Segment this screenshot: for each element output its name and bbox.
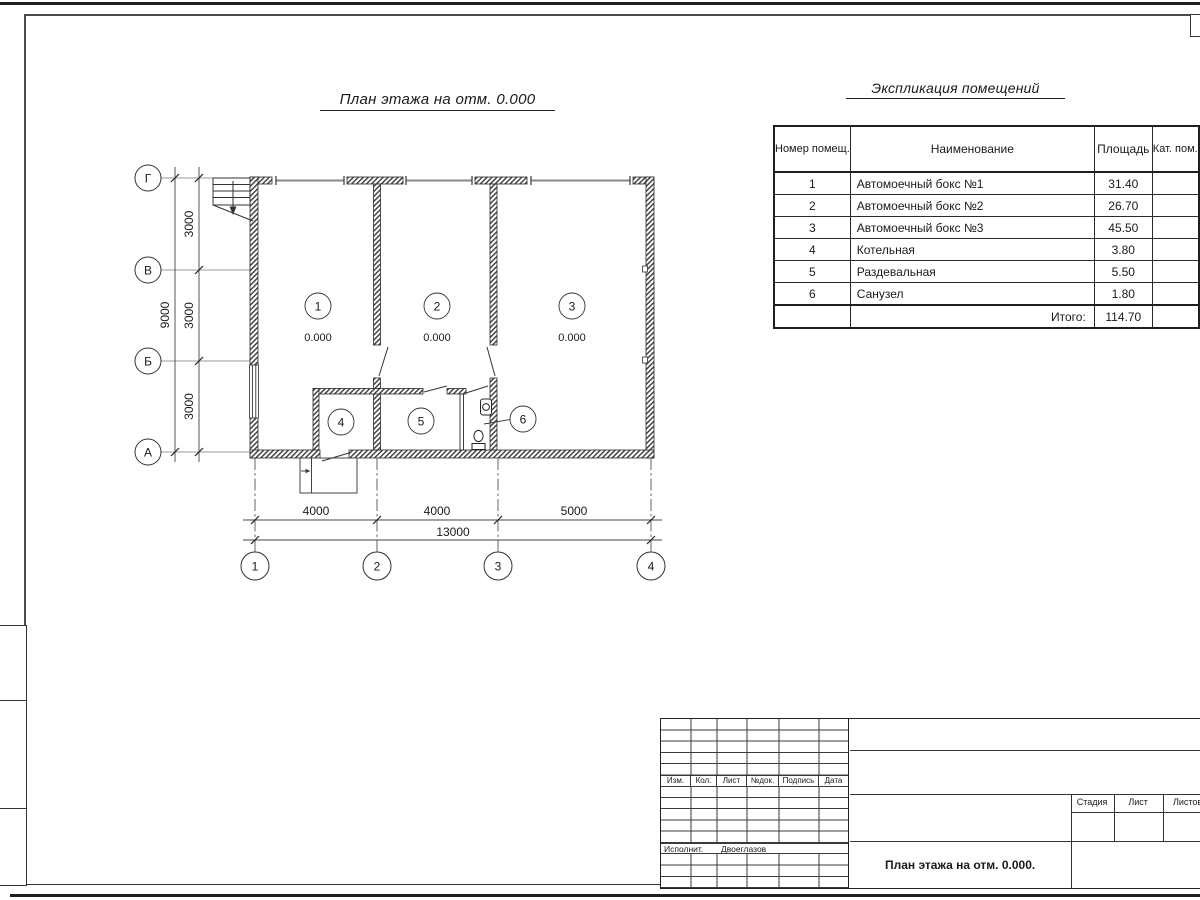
porch bbox=[300, 458, 357, 493]
room-number: 4 bbox=[774, 239, 850, 261]
room-5-number: 5 bbox=[418, 415, 425, 429]
dim-bottom-total: 13000 bbox=[436, 525, 470, 539]
col-izm: Изм. bbox=[661, 776, 691, 785]
walls bbox=[250, 177, 654, 458]
stamp-line bbox=[850, 750, 1200, 751]
table-row: 5 Раздевальная 5.50 bbox=[774, 261, 1199, 283]
room-labels: 1 0.000 2 0.000 3 0.000 4 5 6 bbox=[304, 293, 586, 435]
room-area: 26.70 bbox=[1094, 195, 1152, 217]
frame-top-line bbox=[24, 14, 1200, 16]
stairs-symbol bbox=[213, 178, 253, 221]
axis-bubbles-cols: 1 2 3 4 bbox=[241, 552, 665, 580]
header-room-number: Номер помещ. bbox=[774, 126, 850, 172]
room-number: 5 bbox=[774, 261, 850, 283]
room-name: Автомоечный бокс №2 bbox=[850, 195, 1094, 217]
executor-name: Двоеглазов bbox=[721, 844, 781, 854]
dim-left-2: 3000 bbox=[182, 302, 196, 329]
room-category bbox=[1152, 217, 1198, 239]
room-area: 3.80 bbox=[1094, 239, 1152, 261]
dim-bottom-3: 5000 bbox=[561, 504, 588, 518]
title-block-revision-grid: Изм. Кол. Лист №док. Подпись Дата Исполн… bbox=[661, 719, 849, 888]
room-name: Котельная bbox=[850, 239, 1094, 261]
room-3-elevation: 0.000 bbox=[558, 332, 586, 344]
room-category bbox=[1152, 261, 1198, 283]
executor-label: Исполнит. bbox=[664, 844, 718, 854]
sheet-top-edge bbox=[0, 2, 1200, 5]
room-2-number: 2 bbox=[434, 300, 441, 314]
explication-title: Экспликация помещений bbox=[846, 80, 1065, 99]
room-category bbox=[1152, 283, 1198, 306]
table-row: 3 Автомоечный бокс №3 45.50 bbox=[774, 217, 1199, 239]
frame-margin-box-3 bbox=[0, 808, 27, 886]
dim-bottom-1: 4000 bbox=[303, 504, 330, 518]
axis-label-col-4: 4 bbox=[648, 560, 655, 574]
sheet-bottom-edge bbox=[10, 894, 1200, 897]
room-1-elevation: 0.000 bbox=[304, 332, 332, 344]
axis-label-row-1: Г bbox=[145, 172, 152, 186]
partition-wall bbox=[460, 394, 464, 450]
stamp-line bbox=[1071, 812, 1200, 813]
col-kol: Кол. bbox=[691, 776, 717, 785]
frame-margin-box-1 bbox=[0, 625, 27, 702]
document-title: План этажа на отм. 0.000. bbox=[850, 842, 1071, 888]
room-name: Раздевальная bbox=[850, 261, 1094, 283]
title-block: Изм. Кол. Лист №док. Подпись Дата Исполн… bbox=[660, 718, 1200, 889]
window-symbol bbox=[250, 365, 259, 418]
executor-row: Исполнит. Двоеглазов bbox=[661, 843, 848, 854]
dim-bottom-2: 4000 bbox=[424, 504, 451, 518]
table-row: 4 Котельная 3.80 bbox=[774, 239, 1199, 261]
room-number: 2 bbox=[774, 195, 850, 217]
room-area: 45.50 bbox=[1094, 217, 1152, 239]
room-number: 1 bbox=[774, 172, 850, 195]
room-1-number: 1 bbox=[315, 300, 322, 314]
gate-lines bbox=[276, 176, 630, 185]
room-number: 3 bbox=[774, 217, 850, 239]
room-category bbox=[1152, 195, 1198, 217]
dim-left-1: 3000 bbox=[182, 210, 196, 237]
room-name: Автомоечный бокс №1 bbox=[850, 172, 1094, 195]
explication-table: Номер помещ. Наименование Площадь Кат. п… bbox=[773, 125, 1200, 329]
room-2-elevation: 0.000 bbox=[423, 332, 451, 344]
room-6-number: 6 bbox=[520, 413, 527, 427]
axis-label-col-2: 2 bbox=[374, 560, 381, 574]
room-name: Автомоечный бокс №3 bbox=[850, 217, 1094, 239]
room-4-number: 4 bbox=[338, 416, 345, 430]
col-data: Дата bbox=[819, 776, 848, 785]
frame-corner-box bbox=[1190, 14, 1200, 37]
room-name: Санузел bbox=[850, 283, 1094, 306]
axis-label-col-1: 1 bbox=[252, 560, 259, 574]
sheet-label: Лист bbox=[1114, 794, 1163, 811]
col-podpis: Подпись bbox=[779, 776, 819, 785]
col-list: Лист bbox=[717, 776, 747, 785]
door-swing-symbol bbox=[322, 347, 495, 461]
header-area: Площадь bbox=[1094, 126, 1152, 172]
room-number: 6 bbox=[774, 283, 850, 306]
header-category: Кат. пом. bbox=[1152, 126, 1198, 172]
table-header-row: Номер помещ. Наименование Площадь Кат. п… bbox=[774, 126, 1199, 172]
room-area: 1.80 bbox=[1094, 283, 1152, 306]
room-3-number: 3 bbox=[569, 300, 576, 314]
axis-label-col-3: 3 bbox=[495, 560, 502, 574]
table-total-row: Итого: 114.70 bbox=[774, 305, 1199, 328]
axis-label-row-4: А bbox=[144, 446, 152, 460]
col-dok: №док. bbox=[747, 776, 779, 785]
dim-left-total: 9000 bbox=[158, 301, 172, 328]
toilet-symbol bbox=[472, 430, 485, 449]
header-name: Наименование bbox=[850, 126, 1094, 172]
table-row: 6 Санузел 1.80 bbox=[774, 283, 1199, 306]
sheets-label: Листов bbox=[1163, 794, 1200, 811]
floor-plan-drawing: 3000 3000 3000 9000 4000 4000 5000 13000… bbox=[120, 60, 700, 590]
total-value: 114.70 bbox=[1094, 305, 1152, 328]
stage-label: Стадия bbox=[1071, 794, 1114, 811]
room-area: 5.50 bbox=[1094, 261, 1152, 283]
axis-label-row-2: В bbox=[144, 264, 152, 278]
room-area: 31.40 bbox=[1094, 172, 1152, 195]
dim-left-3: 3000 bbox=[182, 393, 196, 420]
sink-symbol bbox=[481, 399, 492, 415]
axis-label-row-3: Б bbox=[144, 355, 152, 369]
table-row: 2 Автомоечный бокс №2 26.70 bbox=[774, 195, 1199, 217]
room-category bbox=[1152, 239, 1198, 261]
total-label: Итого: bbox=[850, 305, 1094, 328]
table-row: 1 Автомоечный бокс №1 31.40 bbox=[774, 172, 1199, 195]
revision-header-row: Изм. Кол. Лист №док. Подпись Дата bbox=[661, 775, 848, 786]
title-block-right: Стадия Лист Листов План этажа на отм. 0.… bbox=[850, 719, 1200, 888]
frame-margin-box-2 bbox=[0, 700, 27, 810]
room-category bbox=[1152, 172, 1198, 195]
